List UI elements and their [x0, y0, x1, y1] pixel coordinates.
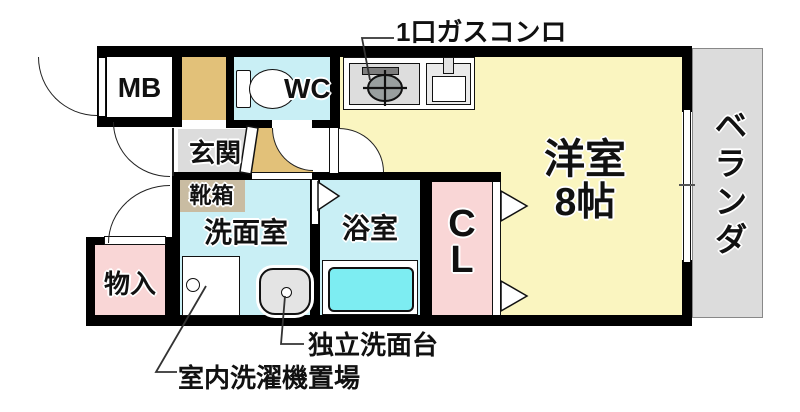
washstand-annotation: 独立洗面台: [308, 331, 438, 359]
mb-label: MB: [107, 70, 172, 106]
gas-stove-annotation: 1口ガスコンロ: [396, 18, 566, 46]
washstand-drain-circle: [281, 287, 292, 298]
wall-wc-right: [330, 46, 340, 128]
floor-plan: MB WC 玄関 靴箱 洗面室 浴室 C L 洋室 8帖 ベランダ 物入 1口ガ…: [0, 0, 800, 412]
door-swing-arc-icon: [113, 122, 170, 177]
wall-wc-bottom-left: [226, 120, 272, 128]
western-room-label: 洋室 8帖: [470, 133, 700, 229]
wall-right-lower: [682, 260, 692, 326]
entrance-tile-strip: [182, 57, 226, 120]
wall-right-upper: [682, 46, 692, 112]
washroom-entry-opening: [252, 172, 312, 180]
wall-bathroom-closet: [420, 172, 432, 315]
wc-label: WC: [284, 74, 331, 104]
wall-wc-bottom-right: [312, 120, 340, 128]
washroom-label: 洗面室: [180, 216, 312, 250]
washer-space-annotation: 室内洗濯機置場: [178, 364, 360, 392]
wall-storage-right: [165, 237, 180, 315]
wall-bottom: [86, 315, 692, 326]
hall-room-door-frame: [329, 128, 339, 173]
western-room-name: 洋室: [544, 137, 626, 182]
faucet-icon: [443, 57, 454, 74]
storage-label: 物入: [95, 266, 165, 302]
wall-storage-left: [86, 237, 95, 315]
wall-hall-bottom-right: [312, 172, 420, 180]
stove-grill-bar: [362, 67, 399, 75]
door-swing-arc-icon: [108, 185, 170, 243]
sink-basin: [432, 76, 466, 102]
veranda-label: ベランダ: [694, 55, 762, 313]
closet-letter-l: L: [450, 242, 473, 278]
western-room-size: 8帖: [555, 182, 616, 225]
wall-top: [97, 46, 692, 57]
bathroom-label: 浴室: [320, 213, 420, 245]
washer-hookup-circle: [186, 278, 200, 292]
entrance-door-frame-line: [172, 128, 174, 176]
wall-tile-right: [226, 57, 234, 128]
wall-mb-right: [172, 57, 182, 127]
shoe-box-label: 靴箱: [178, 180, 245, 212]
entrance-label: 玄関: [178, 131, 252, 175]
mb-door: [98, 58, 106, 116]
bathtub-icon: [328, 267, 414, 312]
washroom-bathroom-door: [311, 180, 319, 224]
door-swing-arc-icon: [38, 57, 97, 116]
